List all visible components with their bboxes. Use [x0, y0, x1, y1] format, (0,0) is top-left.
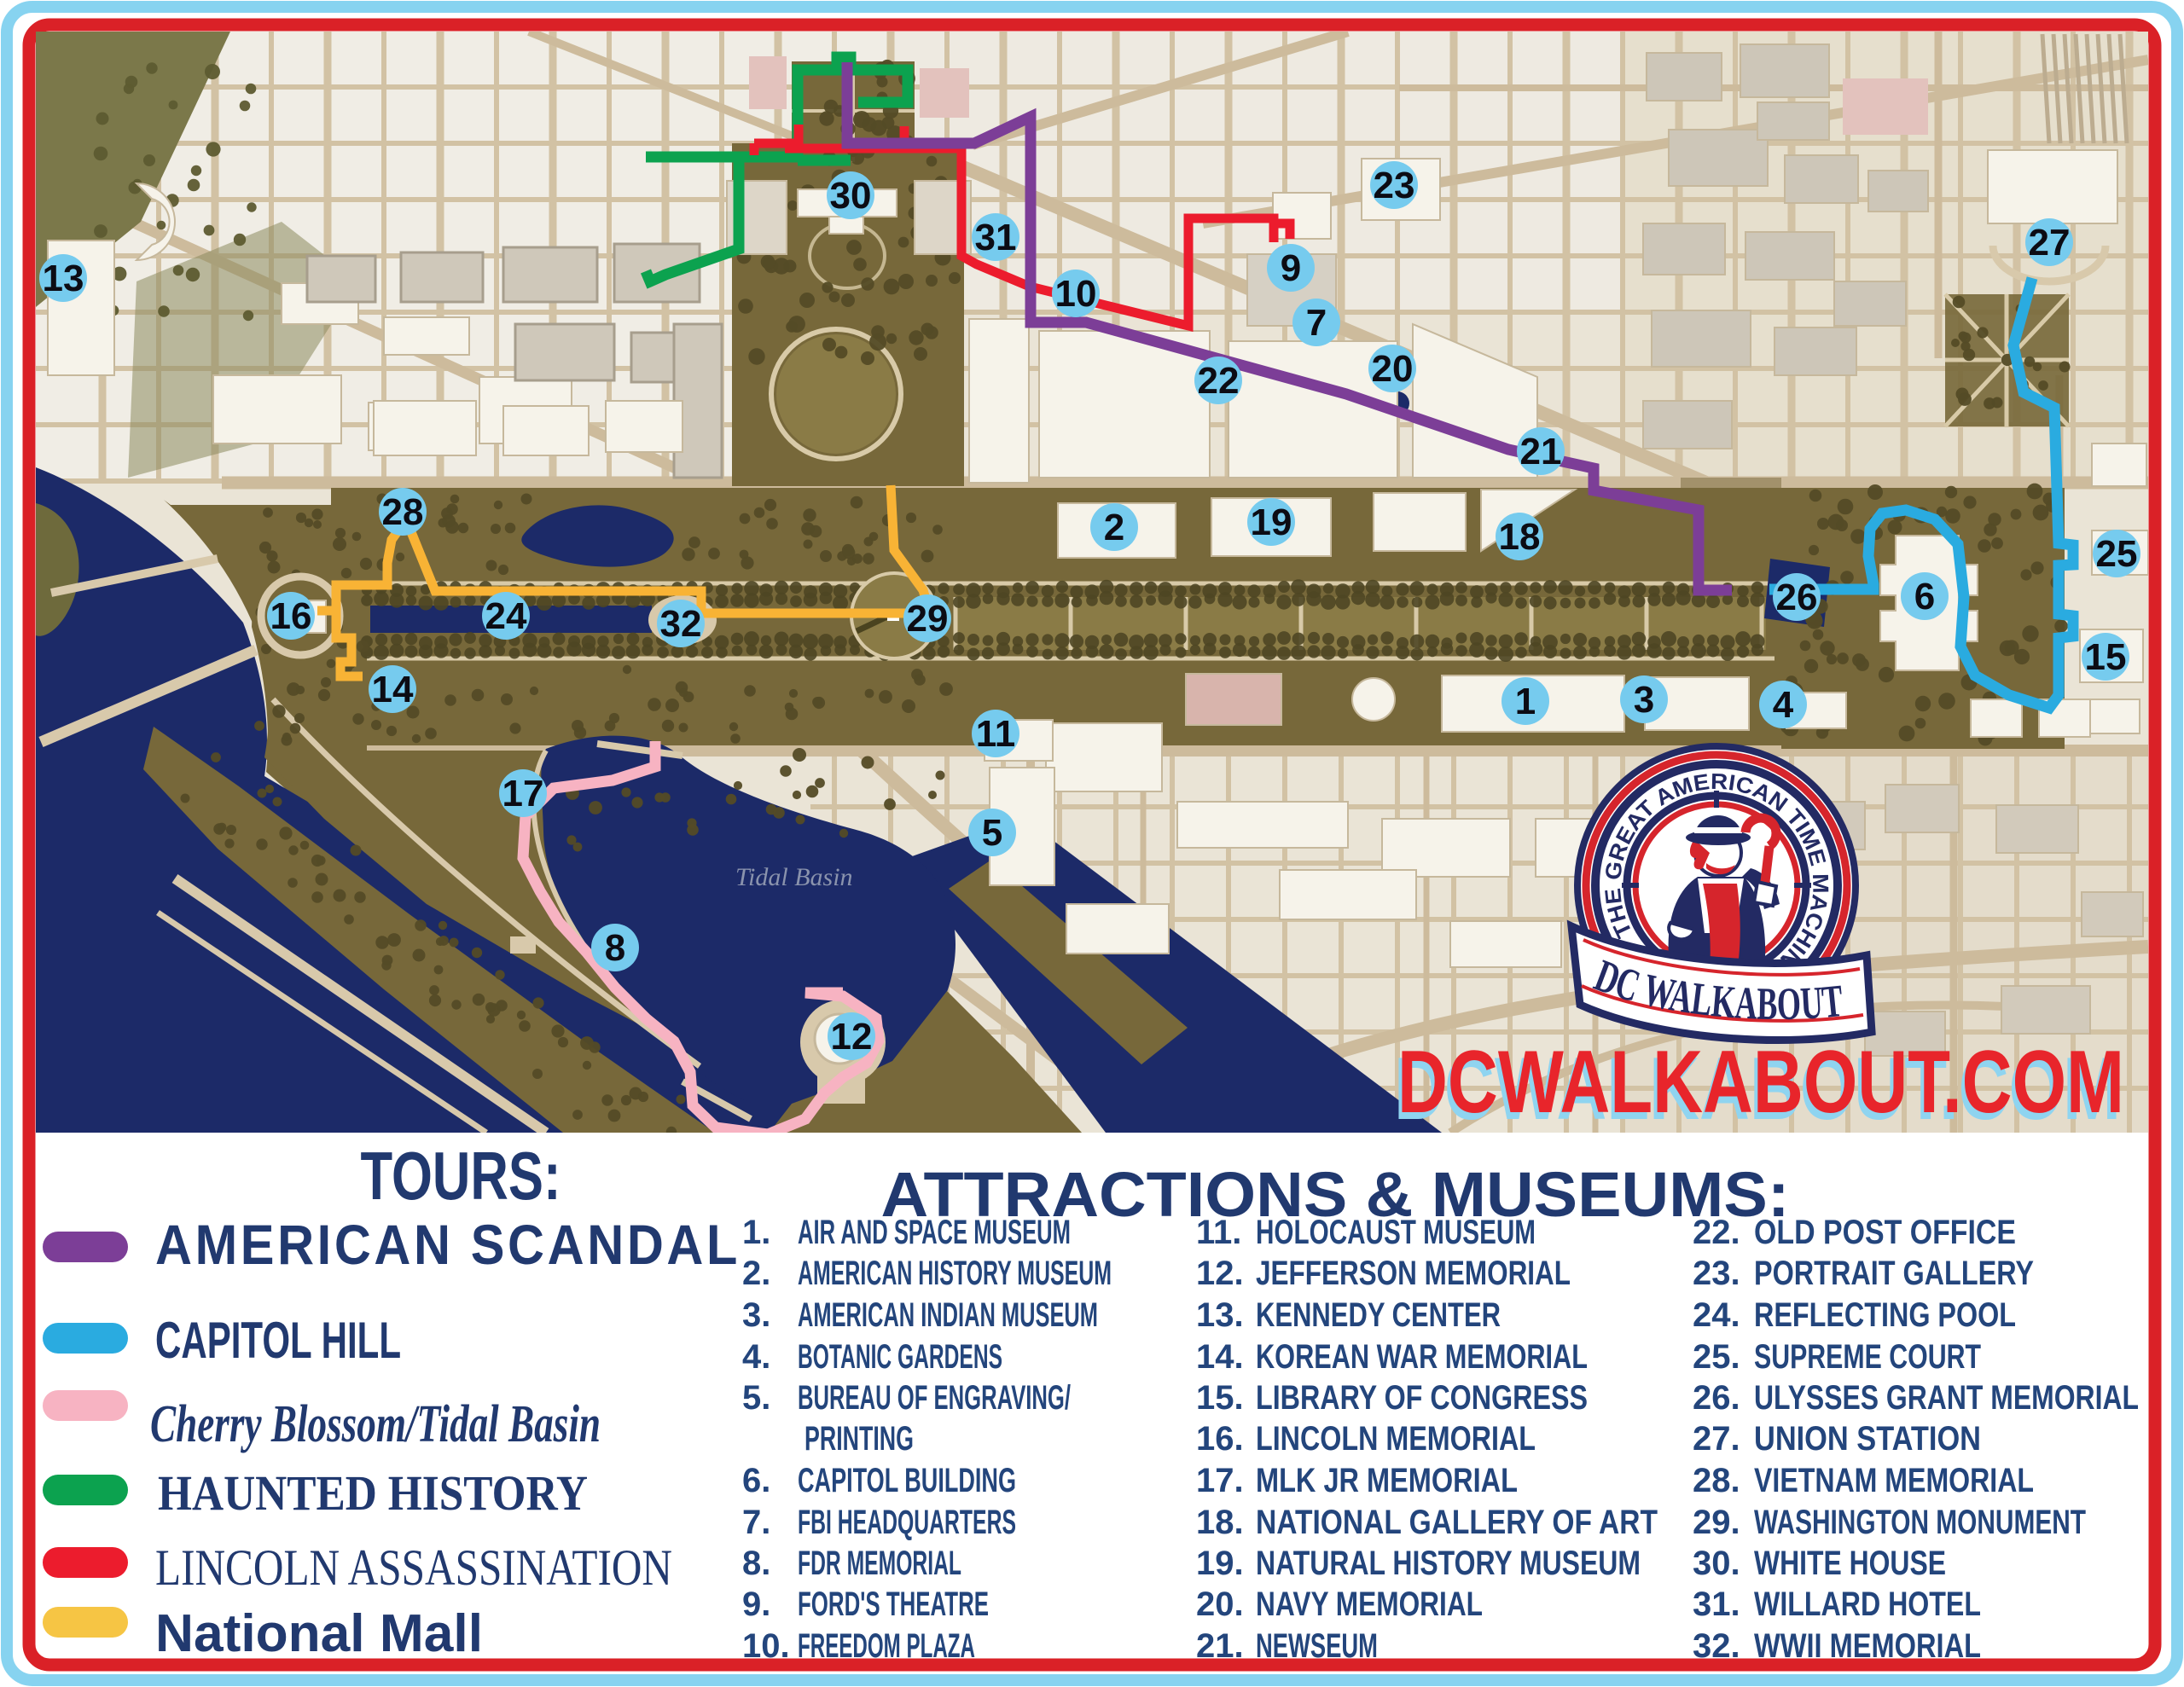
svg-text:ULYSSES GRANT MEMORIAL: ULYSSES GRANT MEMORIAL: [1754, 1379, 2139, 1417]
svg-text:31: 31: [975, 217, 1017, 258]
svg-text:8: 8: [605, 927, 625, 969]
svg-text:AIR AND SPACE MUSEUM: AIR AND SPACE MUSEUM: [798, 1214, 1071, 1251]
svg-text:6.: 6.: [742, 1462, 770, 1499]
svg-text:1.: 1.: [742, 1214, 770, 1251]
svg-text:23: 23: [1374, 165, 1415, 206]
svg-text:NEWSEUM: NEWSEUM: [1256, 1627, 1378, 1665]
svg-text:2.: 2.: [742, 1255, 770, 1292]
svg-text:28: 28: [382, 491, 424, 533]
svg-text:24.: 24.: [1693, 1296, 1740, 1334]
svg-text:10: 10: [1055, 273, 1097, 315]
svg-text:HOLOCAUST MUSEUM: HOLOCAUST MUSEUM: [1256, 1214, 1536, 1251]
svg-text:SUPREME COURT: SUPREME COURT: [1754, 1338, 1981, 1376]
svg-text:15.: 15.: [1196, 1379, 1244, 1417]
svg-text:9.: 9.: [742, 1586, 770, 1623]
svg-text:5: 5: [982, 812, 1002, 854]
svg-text:29.: 29.: [1693, 1504, 1740, 1541]
svg-text:4.: 4.: [742, 1338, 770, 1376]
svg-text:7.: 7.: [742, 1504, 770, 1541]
svg-text:19.: 19.: [1196, 1545, 1244, 1582]
svg-text:15: 15: [2085, 636, 2127, 678]
svg-text:Tidal Basin: Tidal Basin: [735, 863, 853, 891]
svg-text:KOREAN WAR MEMORIAL: KOREAN WAR MEMORIAL: [1256, 1338, 1588, 1376]
svg-text:12.: 12.: [1196, 1255, 1244, 1292]
svg-text:20.: 20.: [1196, 1586, 1244, 1623]
svg-text:KENNEDY CENTER: KENNEDY CENTER: [1256, 1296, 1501, 1334]
svg-text:DCWALKABOUT.COM: DCWALKABOUT.COM: [1397, 1033, 2124, 1132]
svg-text:MLK JR MEMORIAL: MLK JR MEMORIAL: [1256, 1462, 1518, 1499]
svg-text:HAUNTED HISTORY: HAUNTED HISTORY: [158, 1465, 588, 1521]
svg-text:4: 4: [1773, 684, 1794, 726]
svg-text:27: 27: [2029, 222, 2071, 264]
svg-text:UNION STATION: UNION STATION: [1754, 1420, 1981, 1458]
svg-text:8.: 8.: [742, 1545, 770, 1582]
svg-text:PRINTING: PRINTING: [804, 1420, 914, 1458]
svg-text:17.: 17.: [1196, 1462, 1244, 1499]
svg-text:LINCOLN ASSASSINATION: LINCOLN ASSASSINATION: [155, 1539, 672, 1596]
svg-text:29: 29: [907, 598, 949, 640]
svg-text:20: 20: [1372, 348, 1414, 390]
svg-text:11: 11: [976, 713, 1016, 755]
svg-text:TOURS:: TOURS:: [361, 1138, 561, 1214]
svg-text:19: 19: [1251, 501, 1292, 543]
svg-text:21: 21: [1520, 431, 1562, 472]
svg-text:FBI HEADQUARTERS: FBI HEADQUARTERS: [798, 1504, 1016, 1541]
svg-text:32.: 32.: [1693, 1627, 1740, 1665]
svg-text:WHITE HOUSE: WHITE HOUSE: [1754, 1545, 1946, 1582]
svg-text:WILLARD HOTEL: WILLARD HOTEL: [1754, 1586, 1981, 1623]
svg-text:JEFFERSON MEMORIAL: JEFFERSON MEMORIAL: [1256, 1255, 1571, 1292]
svg-text:31.: 31.: [1693, 1586, 1740, 1623]
svg-text:18.: 18.: [1196, 1504, 1244, 1541]
svg-text:32: 32: [660, 603, 702, 645]
svg-text:AMERICAN SCANDAL: AMERICAN SCANDAL: [155, 1213, 741, 1276]
svg-text:9: 9: [1281, 247, 1301, 289]
svg-text:22.: 22.: [1693, 1214, 1740, 1251]
svg-text:11.: 11.: [1196, 1214, 1241, 1251]
svg-text:25: 25: [2096, 533, 2138, 575]
svg-text:22: 22: [1198, 360, 1240, 402]
svg-text:13.: 13.: [1196, 1296, 1244, 1334]
svg-text:FORD'S THEATRE: FORD'S THEATRE: [798, 1586, 989, 1623]
svg-text:BOTANIC GARDENS: BOTANIC GARDENS: [798, 1338, 1002, 1376]
svg-text:25.: 25.: [1693, 1338, 1740, 1376]
svg-text:REFLECTING POOL: REFLECTING POOL: [1754, 1296, 2016, 1334]
svg-text:AMERICAN HISTORY MUSEUM: AMERICAN HISTORY MUSEUM: [798, 1255, 1112, 1292]
svg-text:LIBRARY OF CONGRESS: LIBRARY OF CONGRESS: [1256, 1379, 1588, 1417]
svg-text:WWII MEMORIAL: WWII MEMORIAL: [1754, 1627, 1981, 1665]
svg-text:CAPITOL BUILDING: CAPITOL BUILDING: [798, 1462, 1016, 1499]
svg-text:21.: 21.: [1196, 1627, 1244, 1665]
svg-text:26.: 26.: [1693, 1379, 1740, 1417]
svg-text:28.: 28.: [1693, 1462, 1740, 1499]
svg-text:NATIONAL GALLERY OF ART: NATIONAL GALLERY OF ART: [1256, 1504, 1658, 1541]
svg-text:3.: 3.: [742, 1296, 770, 1334]
svg-text:16.: 16.: [1196, 1420, 1244, 1458]
svg-text:23.: 23.: [1693, 1255, 1740, 1292]
svg-text:5.: 5.: [742, 1379, 770, 1417]
svg-text:NATURAL HISTORY MUSEUM: NATURAL HISTORY MUSEUM: [1256, 1545, 1641, 1582]
svg-text:LINCOLN MEMORIAL: LINCOLN MEMORIAL: [1256, 1420, 1536, 1458]
svg-text:12: 12: [831, 1016, 873, 1058]
svg-text:14.: 14.: [1196, 1338, 1244, 1376]
svg-text:17: 17: [502, 773, 544, 815]
svg-text:WASHINGTON MONUMENT: WASHINGTON MONUMENT: [1754, 1504, 2086, 1541]
svg-text:16: 16: [270, 595, 312, 637]
svg-text:FREEDOM PLAZA: FREEDOM PLAZA: [798, 1627, 975, 1665]
svg-text:13: 13: [43, 258, 84, 299]
svg-text:3: 3: [1634, 679, 1654, 721]
svg-text:26: 26: [1776, 577, 1818, 618]
svg-text:27.: 27.: [1693, 1420, 1740, 1458]
svg-text:OLD POST OFFICE: OLD POST OFFICE: [1754, 1214, 2016, 1251]
svg-text:AMERICAN INDIAN MUSEUM: AMERICAN INDIAN MUSEUM: [798, 1296, 1098, 1334]
svg-text:1: 1: [1515, 681, 1536, 722]
svg-text:30.: 30.: [1693, 1545, 1740, 1582]
svg-text:14: 14: [372, 669, 414, 710]
svg-text:30: 30: [830, 175, 872, 217]
svg-text:CAPITOL HILL: CAPITOL HILL: [155, 1312, 401, 1369]
svg-text:National Mall: National Mall: [155, 1604, 483, 1663]
svg-text:24: 24: [485, 595, 527, 637]
svg-text:6: 6: [1914, 576, 1935, 617]
svg-text:10.: 10.: [742, 1627, 790, 1665]
svg-text:18: 18: [1499, 516, 1541, 558]
svg-text:Cherry Blossom/Tidal Basin: Cherry Blossom/Tidal Basin: [150, 1395, 601, 1453]
svg-text:7: 7: [1306, 302, 1327, 344]
svg-text:NAVY MEMORIAL: NAVY MEMORIAL: [1256, 1586, 1483, 1623]
svg-text:BUREAU OF ENGRAVING/: BUREAU OF ENGRAVING/: [798, 1379, 1071, 1417]
svg-text:2: 2: [1104, 507, 1124, 548]
svg-text:FDR MEMORIAL: FDR MEMORIAL: [798, 1545, 961, 1582]
svg-text:VIETNAM MEMORIAL: VIETNAM MEMORIAL: [1754, 1462, 2034, 1499]
svg-text:PORTRAIT GALLERY: PORTRAIT GALLERY: [1754, 1255, 2034, 1292]
